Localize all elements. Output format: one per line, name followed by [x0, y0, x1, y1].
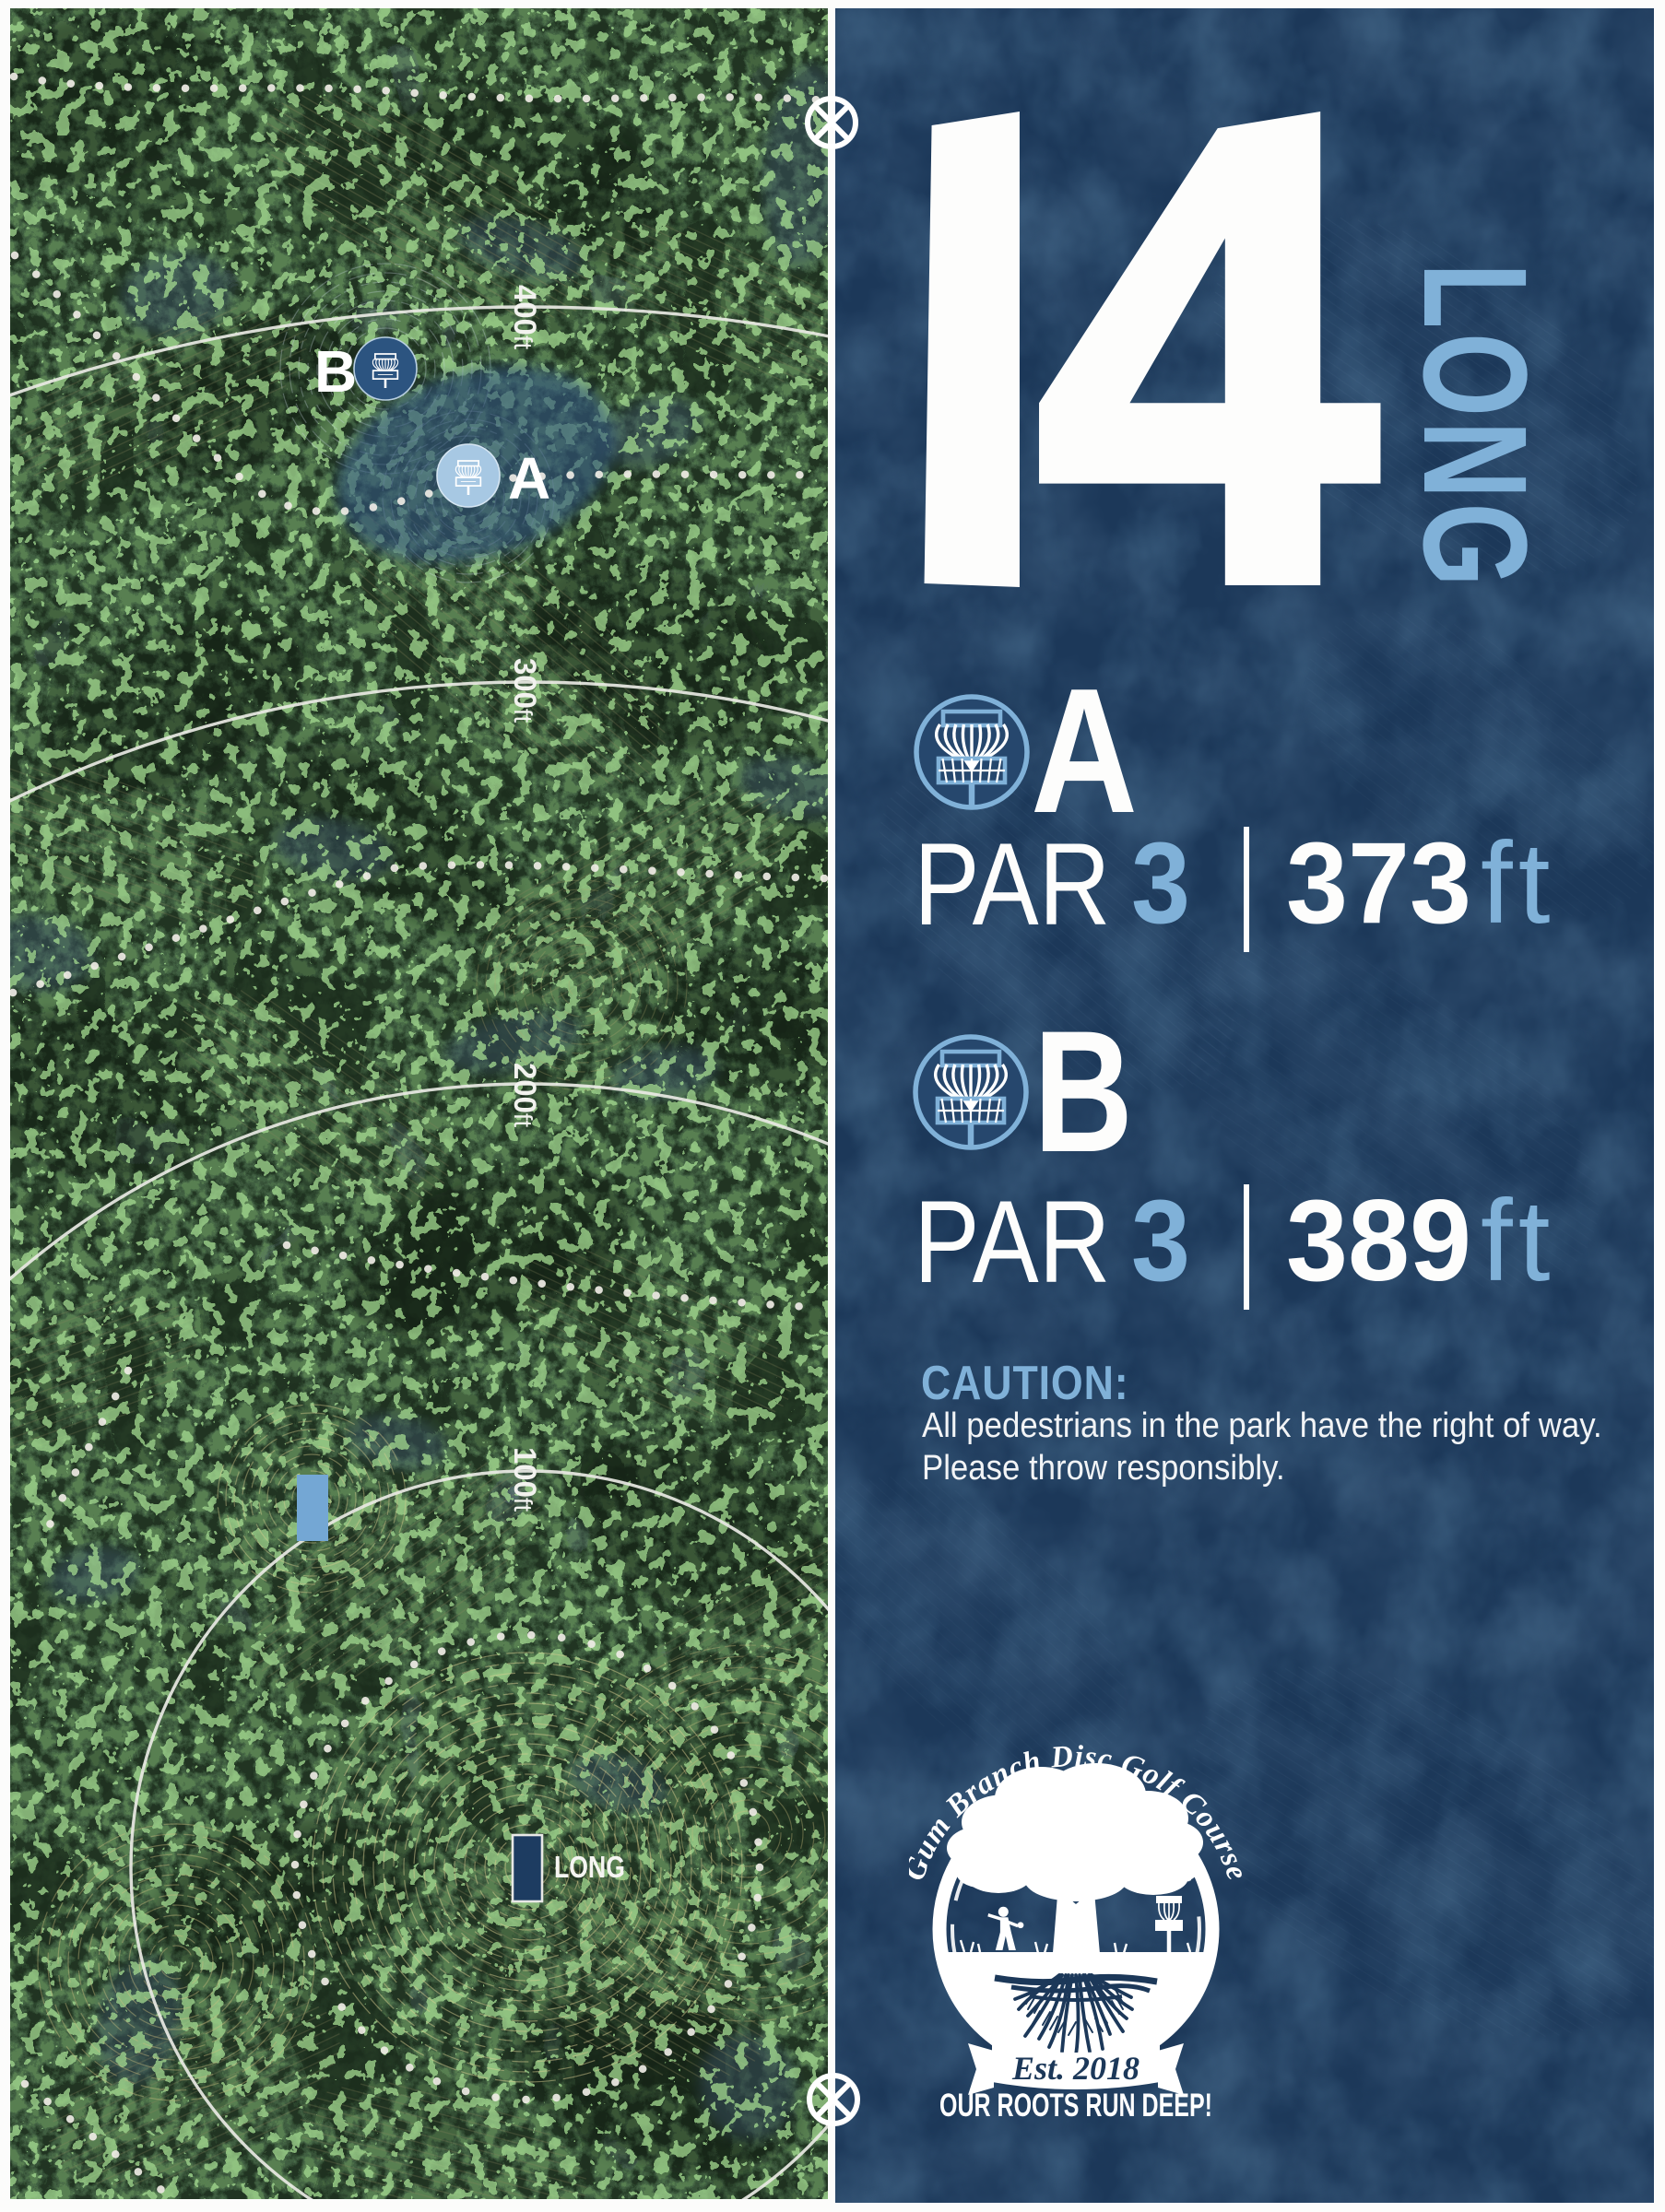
svg-text:OUR ROOTS RUN DEEP!: OUR ROOTS RUN DEEP!	[939, 2088, 1212, 2124]
svg-text:B: B	[1033, 1021, 1133, 1159]
svg-text:373: 373	[1286, 819, 1471, 947]
svg-text:LONG: LONG	[1419, 265, 1533, 590]
svg-text:LONG: LONG	[554, 1850, 625, 1884]
svg-text:200ft: 200ft	[507, 1063, 542, 1127]
svg-text:3: 3	[1131, 819, 1190, 947]
svg-text:100ft: 100ft	[507, 1447, 542, 1512]
svg-text:ft: ft	[1481, 819, 1555, 947]
svg-text:ft: ft	[1481, 1177, 1555, 1305]
svg-text:3: 3	[1131, 1177, 1190, 1305]
svg-text:300ft: 300ft	[507, 658, 542, 723]
svg-text:PAR: PAR	[922, 818, 1111, 949]
svg-text:400ft: 400ft	[507, 285, 542, 349]
svg-text:PAR: PAR	[922, 1176, 1111, 1307]
svg-text:Est. 2018: Est. 2018	[1011, 2050, 1140, 2087]
svg-text:A: A	[1031, 682, 1138, 820]
svg-text:A: A	[508, 445, 550, 512]
svg-text:389: 389	[1286, 1177, 1471, 1305]
svg-text:B: B	[314, 338, 357, 405]
